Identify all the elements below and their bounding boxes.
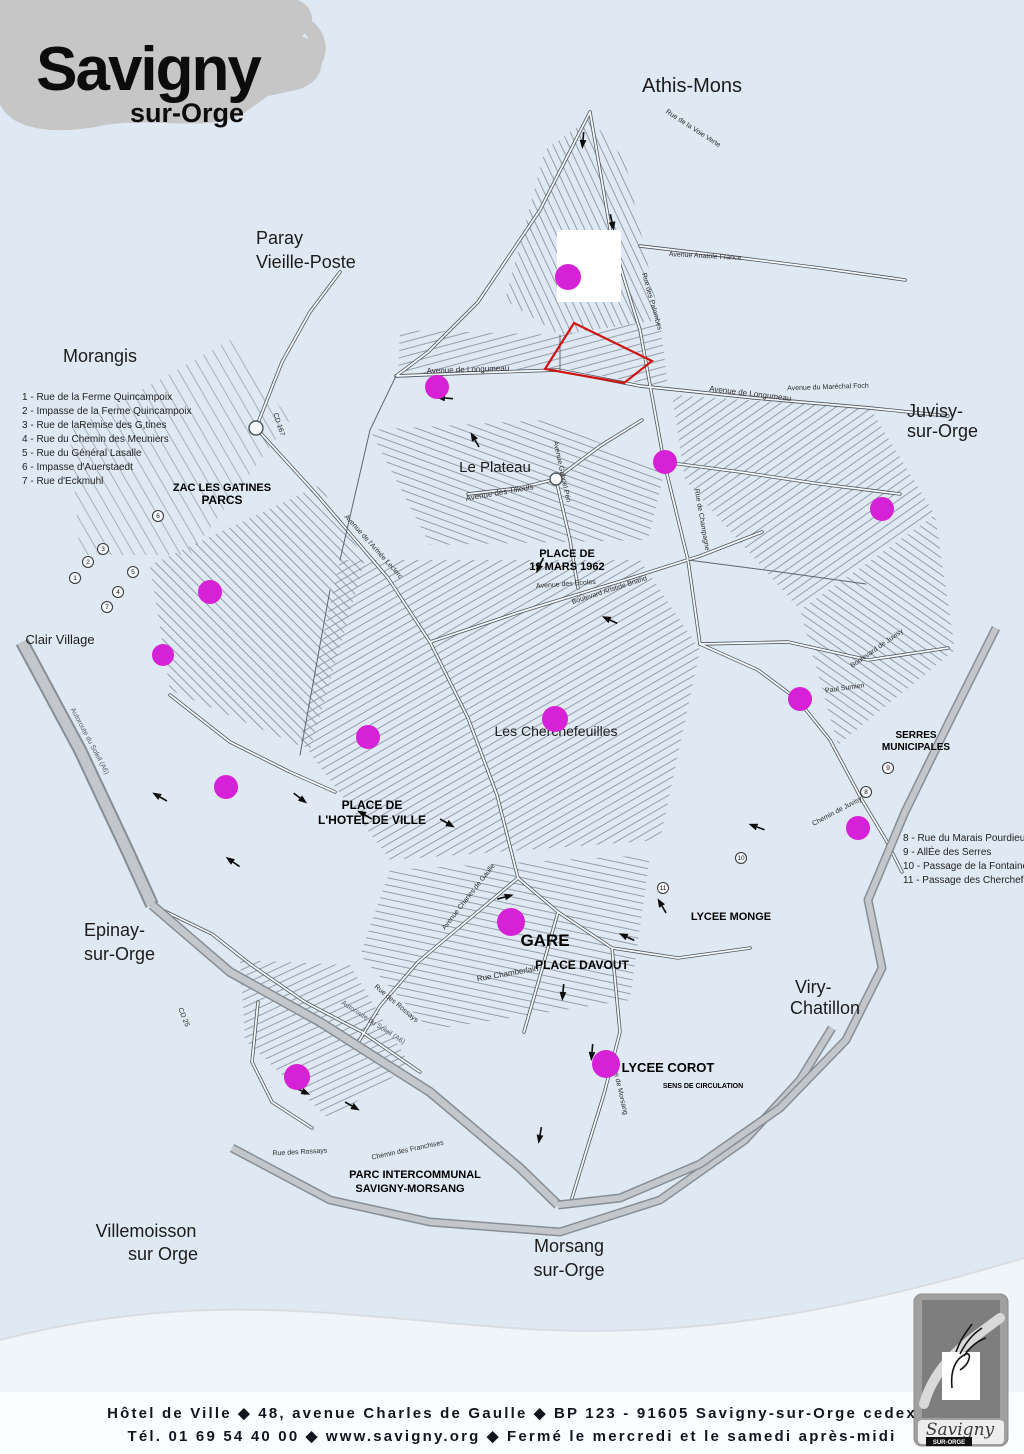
legend-item: 4 - Rue du Chemin des Meuniers (22, 434, 169, 445)
legend-item: 9 - AllÉe des Serres (903, 845, 991, 858)
place-label: PLACE DE (342, 798, 403, 812)
direction-arrow-tail (563, 984, 564, 992)
street-number-text: 9 (886, 765, 890, 772)
place-label: SERRES (895, 730, 936, 741)
street-number-text: 10 (737, 855, 745, 862)
town-label: sur-Orge (907, 421, 978, 441)
poi-marker (555, 264, 581, 290)
logo-subtitle: sur-Orge (130, 98, 244, 128)
street-number-text: 4 (116, 589, 120, 596)
poi-marker (592, 1050, 620, 1078)
area-label: Le Plateau (459, 459, 531, 476)
legend-list-right: 8 - Rue du Marais Pourdieu9 - AllÉe des … (903, 833, 1024, 886)
town-label: sur Orge (128, 1244, 198, 1264)
direction-arrow-icon (224, 854, 242, 869)
place-label: MUNICIPALES (882, 742, 950, 753)
footer-line-2: Tél. 01 69 54 40 00 ◆ www.savigny.org ◆ … (0, 1425, 1024, 1448)
street-label: Rue de la Voie Verte (664, 108, 721, 149)
direction-arrow-head (224, 854, 235, 865)
street-number-text: 6 (156, 513, 160, 520)
street-number-text: 11 (660, 885, 667, 892)
town-label: Paray (256, 228, 303, 248)
poi-marker (425, 375, 449, 399)
poi-marker (198, 580, 222, 604)
direction-arrow-tail (583, 132, 584, 140)
direction-arrow-icon (151, 790, 169, 804)
poi-marker (152, 644, 174, 666)
town-label: Epinay- (84, 920, 145, 940)
street-number-text: 8 (864, 789, 868, 796)
place-label: LYCEE MONGE (691, 911, 771, 923)
poi-marker (653, 450, 677, 474)
legend-item: 2 - Impasse de la Ferme Quincampoix (22, 406, 192, 417)
logo: Savigny sur-Orge (0, 0, 326, 130)
direction-arrow-tail (757, 827, 765, 830)
poi-marker (356, 725, 380, 749)
town-label: Vieille-Poste (256, 252, 356, 272)
legend-item: 10 - Passage de la Fontaine Blanch (903, 861, 1024, 872)
street-label: Chemin des Franchises (371, 1139, 445, 1161)
direction-arrow-tail (662, 906, 666, 913)
place-label: PARCS (201, 493, 242, 507)
direction-arrow-head (747, 821, 758, 830)
street-label: Avenue du Maréchal Foch (787, 383, 869, 393)
footer-line-1: Hôtel de Ville ◆ 48, avenue Charles de G… (0, 1402, 1024, 1425)
town-label: Juvisy- (907, 401, 963, 421)
place-label: GARE (520, 931, 569, 950)
street-label: Rue des Rossays (272, 1148, 328, 1158)
street-number-text: 5 (131, 569, 135, 576)
direction-arrow-head (655, 897, 665, 908)
town-label: Morsang (534, 1236, 604, 1256)
direction-arrow-icon (292, 790, 310, 806)
poi-marker (497, 908, 525, 936)
street-number-text: 7 (105, 604, 109, 611)
legend-item: 8 - Rue du Marais Pourdieu (903, 833, 1024, 844)
legend-item: 3 - Rue de laRemise des G,tines (22, 420, 167, 431)
poi-marker (870, 497, 894, 521)
city-map: Avenue de LongumeauAvenue de LongumeauAv… (0, 0, 1024, 1454)
place-label: 19 MARS 1962 (529, 561, 604, 573)
town-label: Clair Village (25, 632, 94, 647)
legend-item: 1 - Rue de la Ferme Quincampoix (22, 392, 172, 403)
direction-arrow-tail (592, 1044, 593, 1052)
place-label: PLACE DAVOUT (535, 958, 629, 972)
logo-title: Savigny (36, 35, 262, 104)
town-label: Athis-Mons (642, 75, 742, 97)
direction-arrow-tail (445, 398, 453, 399)
legend-item: 5 - Rue du Général Lasalle (22, 448, 142, 459)
poi-marker (284, 1064, 310, 1090)
street-number-text: 2 (86, 559, 90, 566)
street-label: Avenue Anatole France (669, 251, 742, 262)
town-label: Morangis (63, 346, 137, 366)
place-label: L'HOTEL DE VILLE (318, 813, 426, 827)
direction-arrow-tail (233, 862, 240, 867)
place-label: SAVIGNY-MORSANG (355, 1183, 464, 1195)
direction-arrow-icon (747, 821, 765, 833)
town-label: sur-Orge (533, 1260, 604, 1280)
poi-marker (788, 687, 812, 711)
direction-arrow-tail (540, 1127, 541, 1135)
poi-marker (214, 775, 238, 799)
town-label: Chatillon (790, 998, 860, 1018)
place-label: PARC INTERCOMMUNAL (349, 1169, 481, 1181)
street-number-text: 1 (73, 575, 77, 582)
direction-arrow-head (535, 1134, 543, 1144)
direction-arrow-tail (294, 793, 300, 798)
place-label: LYCEE COROT (622, 1060, 715, 1075)
street-label: CD 25 (176, 1007, 190, 1028)
town-label: Viry- (795, 977, 832, 997)
direction-arrow-icon (655, 897, 669, 915)
direction-arrow-tail (160, 797, 167, 801)
poi-marker (846, 816, 870, 840)
direction-arrow-icon (535, 1127, 545, 1145)
legend-item: 6 - Impasse d'Auerstaedt (22, 462, 133, 473)
street-number-text: 3 (101, 546, 105, 553)
legend-item: 11 - Passage des Cherchefeuilles (903, 875, 1024, 886)
legend-item: 7 - Rue d'Eckmuhl (22, 476, 103, 487)
town-label: sur-Orge (84, 944, 155, 964)
badge-window (942, 1352, 980, 1400)
place-label: SENS DE CIRCULATION (663, 1083, 743, 1090)
poi-marker (542, 706, 568, 732)
savigny-map-page: Avenue de LongumeauAvenue de LongumeauAv… (0, 0, 1024, 1454)
direction-arrow-head (151, 790, 162, 800)
footer: Hôtel de Ville ◆ 48, avenue Charles de G… (0, 1402, 1024, 1448)
town-label: Villemoisson (96, 1221, 197, 1241)
place-label: PLACE DE (539, 548, 595, 560)
